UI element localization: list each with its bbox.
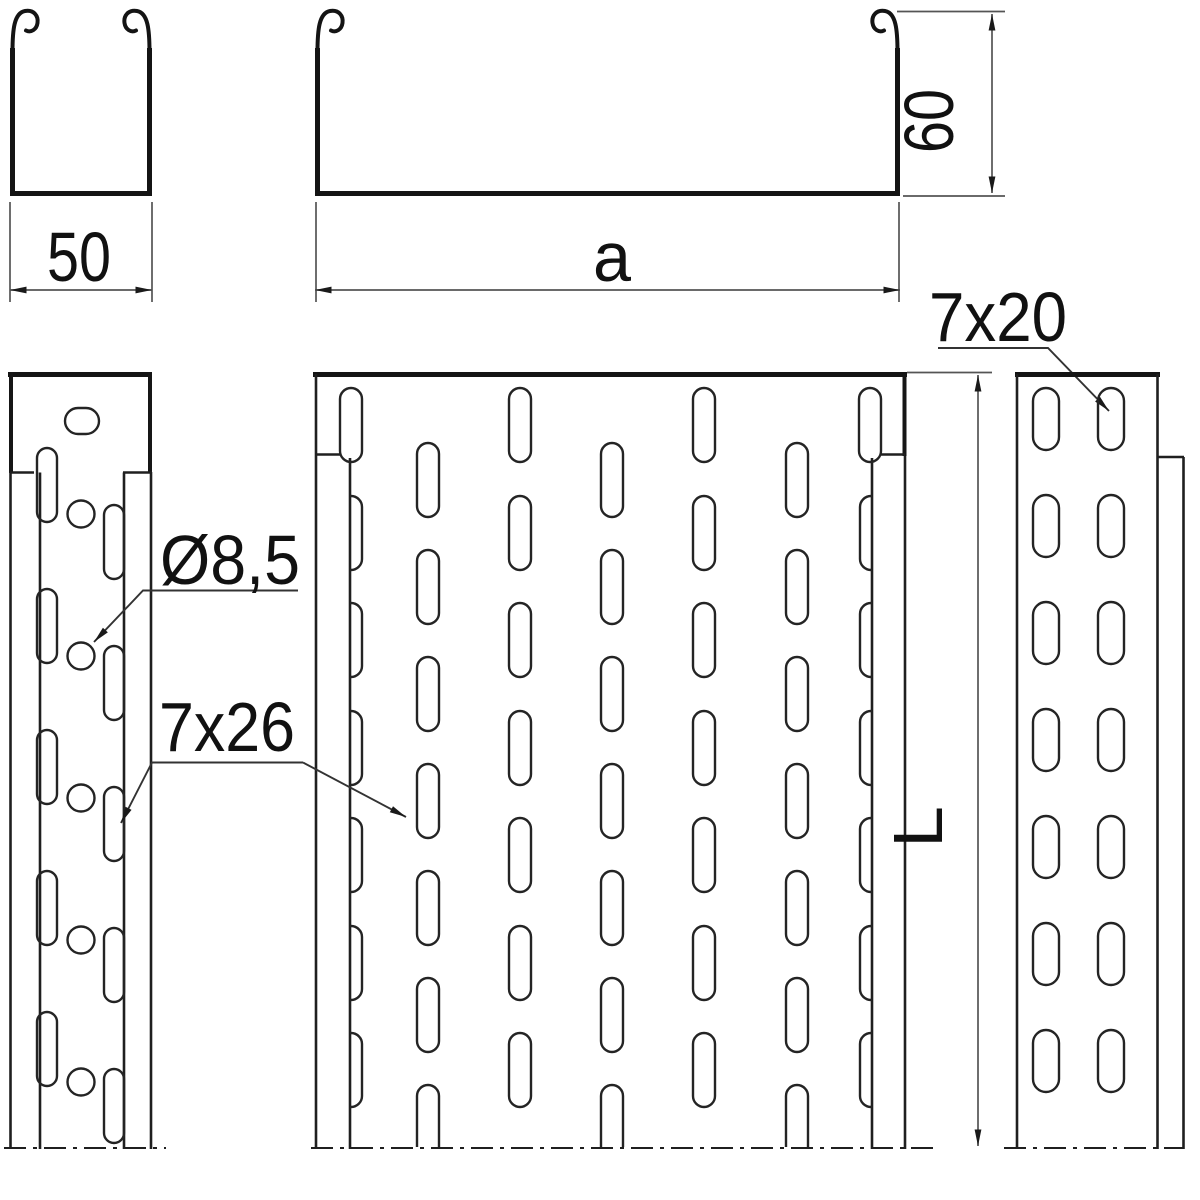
slot-7x20 — [1098, 1030, 1124, 1092]
edge-hook-icon — [318, 11, 343, 52]
slot-7x26 — [601, 764, 623, 838]
cable-tray-technical-drawing: 50 a 60 7x20 — [0, 0, 1200, 1200]
slot-7x26 — [601, 443, 623, 517]
slot-7x26 — [509, 496, 531, 570]
slot-7x26-half — [350, 711, 362, 785]
slot-7x26 — [786, 657, 808, 731]
slot-7x26-half — [350, 1033, 362, 1107]
flange-slot — [65, 408, 99, 434]
slot-7x26-half — [350, 603, 362, 677]
slot-7x26 — [786, 764, 808, 838]
slot-7x26-half — [860, 926, 872, 1000]
slot-7x26 — [104, 1069, 124, 1143]
slot-7x26-fold — [859, 388, 881, 462]
slot-7x26 — [417, 978, 439, 1052]
slot-7x26 — [693, 818, 715, 892]
slot-7x26 — [509, 818, 531, 892]
slot-7x26-cut — [601, 1085, 623, 1147]
slot-label-7x20: 7x20 — [929, 278, 1067, 356]
side-view-50 — [8, 372, 152, 1149]
slot-7x26 — [417, 550, 439, 624]
edge-hook-icon — [13, 11, 38, 52]
dim-label-50: 50 — [47, 218, 111, 296]
slot-7x26 — [601, 550, 623, 624]
slot-7x20 — [1098, 602, 1124, 664]
slot-7x20 — [1033, 923, 1059, 985]
slot-7x20 — [1098, 388, 1124, 450]
edge-hook-icon — [872, 11, 897, 52]
slot-7x20 — [1033, 816, 1059, 878]
plan-view-holes — [340, 388, 881, 1147]
slot-7x26 — [693, 711, 715, 785]
dim-label-a: a — [593, 218, 631, 296]
slot-7x20 — [1033, 495, 1059, 557]
slot-7x26 — [509, 926, 531, 1000]
plan-view — [313, 374, 907, 1149]
hole-d8-5 — [68, 785, 95, 812]
slot-7x26-half — [860, 496, 872, 570]
slot-7x20 — [1033, 709, 1059, 771]
drawing-canvas: 50 a 60 7x20 — [0, 0, 1200, 1200]
slot-7x26 — [601, 978, 623, 1052]
leader-line — [303, 763, 406, 818]
hole-d8-5 — [68, 1069, 95, 1096]
slot-7x26 — [693, 388, 715, 462]
slot-7x20 — [1098, 709, 1124, 771]
slot-7x26 — [693, 603, 715, 677]
slot-7x26 — [786, 871, 808, 945]
slot-7x26-half — [860, 818, 872, 892]
slot-7x26-half — [350, 818, 362, 892]
slot-7x26 — [601, 657, 623, 731]
side-view-end-holes — [1033, 388, 1124, 1092]
hole-d8-5 — [68, 927, 95, 954]
slot-7x26 — [104, 505, 124, 579]
slot-7x26 — [104, 787, 124, 861]
slot-7x26 — [509, 1033, 531, 1107]
slot-7x26-half — [860, 1033, 872, 1107]
hole-d8-5 — [68, 501, 95, 528]
label-7x26: 7x26 — [121, 688, 406, 823]
slot-7x20 — [1098, 816, 1124, 878]
slot-7x20 — [1033, 602, 1059, 664]
side-view-end — [1015, 374, 1184, 1149]
slot-7x26 — [417, 443, 439, 517]
cross-section-50: 50 — [10, 11, 152, 302]
leader-line — [121, 763, 303, 824]
hole-d8-5 — [68, 643, 95, 670]
slot-7x26-cut — [417, 1085, 439, 1147]
slot-7x26 — [601, 871, 623, 945]
slot-7x26 — [104, 646, 124, 720]
slot-7x26 — [417, 657, 439, 731]
dim-label-L: L — [879, 806, 957, 848]
slot-label-7x26: 7x26 — [159, 688, 295, 766]
slot-7x26-half — [350, 926, 362, 1000]
slot-7x26 — [786, 550, 808, 624]
side-view-50-holes — [37, 408, 124, 1143]
hole-label-d85: Ø8,5 — [160, 521, 300, 599]
slot-7x26 — [693, 926, 715, 1000]
slot-7x20 — [1098, 923, 1124, 985]
slot-7x26 — [509, 388, 531, 462]
dim-label-60: 60 — [890, 89, 968, 153]
slot-7x26-fold — [340, 388, 362, 462]
slot-7x26 — [509, 711, 531, 785]
slot-7x26 — [509, 603, 531, 677]
slot-7x26 — [693, 1033, 715, 1107]
edge-hook-icon — [124, 11, 149, 52]
slot-7x26 — [786, 978, 808, 1052]
slot-7x20 — [1098, 495, 1124, 557]
slot-7x26 — [104, 928, 124, 1002]
slot-7x26 — [417, 764, 439, 838]
slot-7x26-half — [860, 711, 872, 785]
slot-7x26-cut — [786, 1085, 808, 1147]
slot-7x20 — [1033, 1030, 1059, 1092]
cross-section-a: a — [315, 11, 900, 302]
slot-7x26 — [417, 871, 439, 945]
slot-7x26 — [693, 496, 715, 570]
dimension-L: L — [879, 373, 992, 1147]
slot-7x26 — [786, 443, 808, 517]
slot-7x26-half — [350, 496, 362, 570]
slot-7x26-half — [860, 603, 872, 677]
leader-line — [938, 348, 1109, 411]
slot-7x20 — [1033, 388, 1059, 450]
label-7x20: 7x20 — [929, 278, 1109, 411]
dimension-60: 60 — [890, 12, 1005, 197]
